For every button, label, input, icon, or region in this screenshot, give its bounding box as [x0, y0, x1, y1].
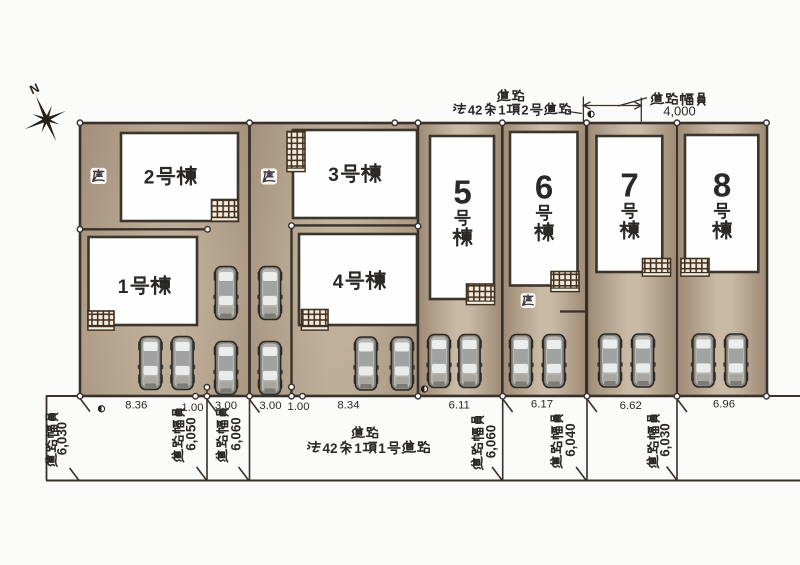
svg-text:6.11: 6.11: [449, 400, 470, 412]
svg-text:2: 2: [144, 168, 155, 189]
svg-text:6,030: 6,030: [55, 422, 70, 456]
svg-text:42: 42: [322, 441, 337, 456]
svg-text:1.00: 1.00: [181, 402, 203, 414]
svg-text:3: 3: [328, 165, 339, 186]
svg-text:1: 1: [118, 277, 129, 298]
svg-text:42: 42: [468, 103, 482, 118]
svg-text:8: 8: [713, 167, 731, 204]
svg-text:6: 6: [535, 169, 553, 206]
svg-text:6,060: 6,060: [229, 417, 244, 451]
svg-text:6.62: 6.62: [620, 400, 642, 412]
svg-text:8.36: 8.36: [125, 400, 147, 412]
svg-text:7: 7: [620, 167, 638, 204]
svg-text:6,060: 6,060: [484, 425, 499, 459]
svg-text:1.00: 1.00: [287, 401, 309, 413]
svg-text:6,050: 6,050: [184, 417, 199, 451]
svg-text:3.00: 3.00: [259, 400, 281, 412]
svg-text:1: 1: [498, 103, 505, 118]
svg-text:5: 5: [453, 174, 471, 211]
svg-text:6,040: 6,040: [563, 423, 578, 457]
svg-text:6,030: 6,030: [658, 423, 673, 457]
svg-text:2: 2: [521, 103, 528, 118]
svg-text:6.17: 6.17: [531, 399, 553, 411]
svg-text:1: 1: [354, 441, 362, 456]
svg-text:4,000: 4,000: [663, 104, 696, 119]
svg-text:8.34: 8.34: [337, 400, 359, 412]
svg-text:6.96: 6.96: [713, 399, 735, 411]
svg-text:4: 4: [333, 272, 344, 293]
svg-text:1: 1: [378, 441, 386, 456]
